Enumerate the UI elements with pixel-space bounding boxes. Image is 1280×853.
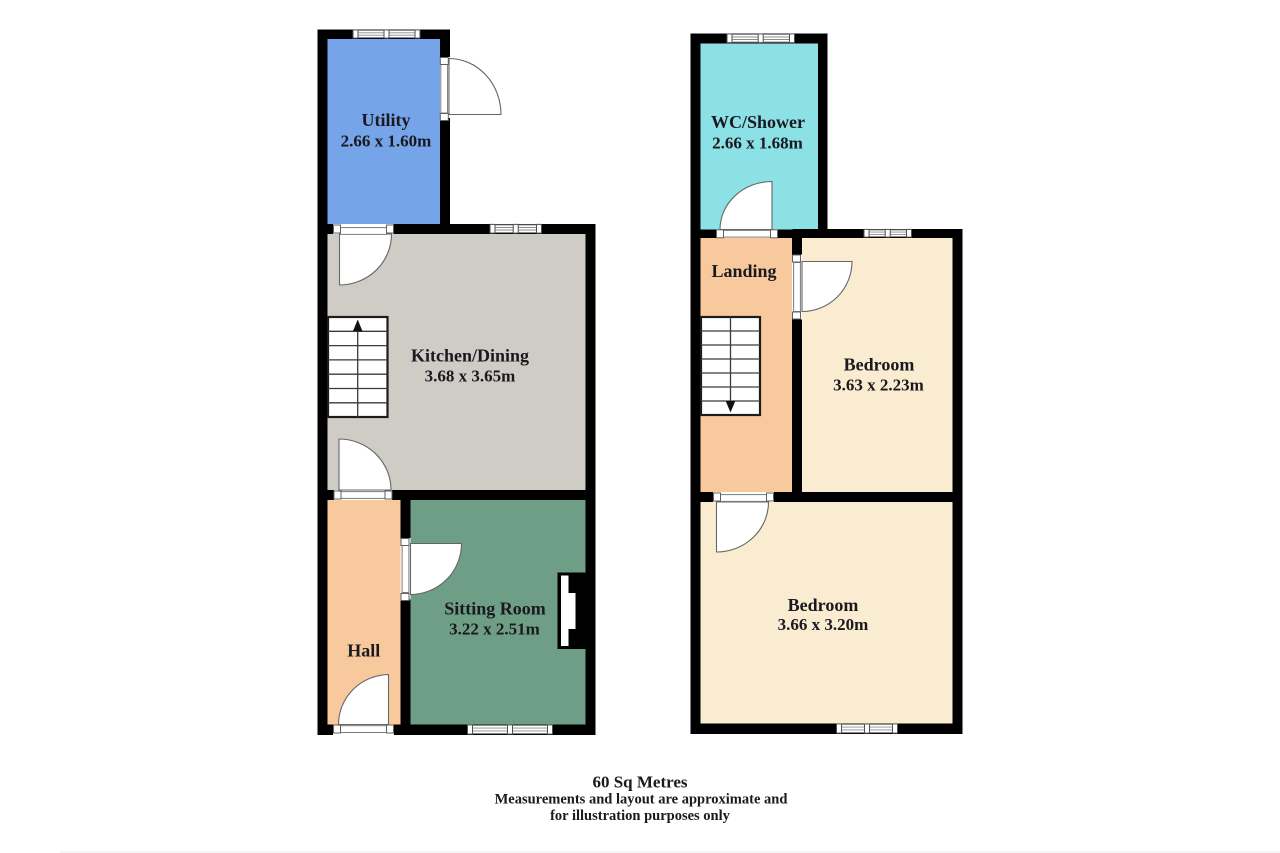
svg-text:3.68 x 3.65m: 3.68 x 3.65m [425, 367, 516, 386]
svg-text:60 Sq Metres: 60 Sq Metres [592, 773, 687, 792]
svg-text:Kitchen/Dining: Kitchen/Dining [411, 346, 529, 366]
svg-text:Landing: Landing [711, 261, 776, 281]
svg-text:3.63 x 2.23m: 3.63 x 2.23m [833, 376, 924, 395]
svg-text:Bedroom: Bedroom [788, 595, 859, 615]
svg-text:WC/Shower: WC/Shower [711, 112, 805, 132]
svg-text:Hall: Hall [347, 641, 380, 661]
svg-text:Sitting Room: Sitting Room [444, 599, 546, 619]
svg-text:3.22 x 2.51m: 3.22 x 2.51m [449, 620, 540, 639]
svg-text:2.66 x 1.68m: 2.66 x 1.68m [712, 134, 803, 153]
svg-text:Utility: Utility [362, 110, 411, 130]
svg-text:Measurements and layout are ap: Measurements and layout are approximate … [495, 792, 788, 808]
svg-text:Bedroom: Bedroom [844, 355, 915, 375]
svg-text:2.66 x 1.60m: 2.66 x 1.60m [341, 132, 432, 151]
svg-text:3.66 x 3.20m: 3.66 x 3.20m [778, 615, 869, 634]
svg-text:for illustration purposes only: for illustration purposes only [550, 808, 731, 824]
